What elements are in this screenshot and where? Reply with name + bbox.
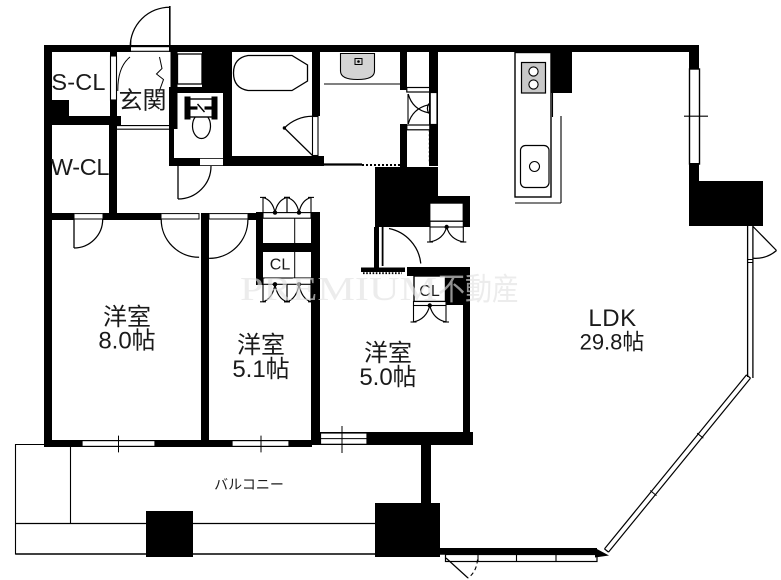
- svg-text:バルコニー: バルコニー: [214, 477, 284, 493]
- svg-text:PREMIUM: PREMIUM: [240, 271, 437, 308]
- svg-text:5.1帖: 5.1帖: [232, 356, 289, 383]
- svg-text:不動産: 不動産: [438, 272, 519, 307]
- svg-text:LDK: LDK: [588, 305, 636, 332]
- svg-text:5.0帖: 5.0帖: [359, 364, 416, 391]
- svg-text:S-CL: S-CL: [51, 69, 105, 95]
- svg-text:洋室: 洋室: [364, 340, 412, 367]
- svg-text:W-CL: W-CL: [51, 154, 110, 180]
- svg-text:8.0帖: 8.0帖: [98, 328, 155, 355]
- svg-text:玄関: 玄関: [119, 88, 167, 115]
- svg-text:洋室: 洋室: [237, 332, 285, 359]
- svg-text:29.8帖: 29.8帖: [580, 330, 645, 355]
